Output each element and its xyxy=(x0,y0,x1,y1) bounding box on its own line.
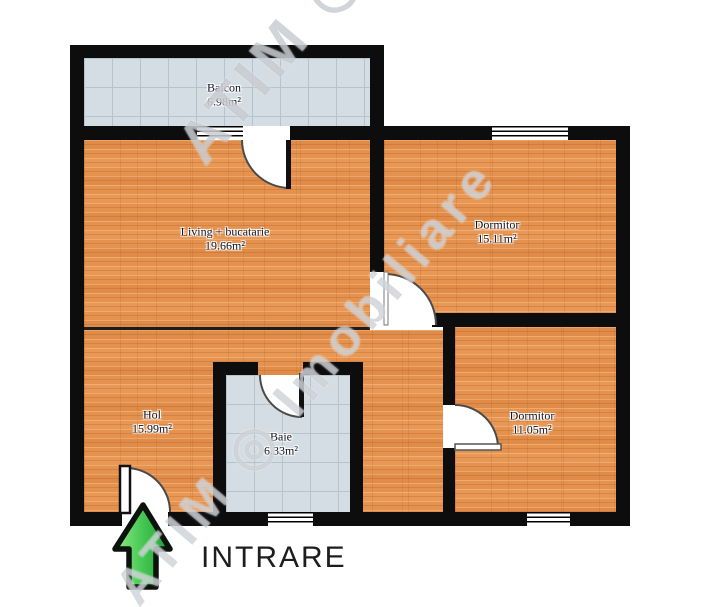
entrance-label: INTRARE xyxy=(201,541,347,575)
room-name: Living + bucatarie xyxy=(181,225,270,239)
room-area: 11.05m² xyxy=(510,423,555,437)
door-dormitor-1-leaf xyxy=(384,272,388,325)
room-area: 15.99m² xyxy=(132,422,172,436)
door-baie-leaf xyxy=(299,373,304,417)
entrance-arrow-icon xyxy=(115,505,170,587)
room-label-dormitor-1: Dormitor 15.11m² xyxy=(475,218,520,247)
doors-and-arrow-layer xyxy=(0,0,723,607)
room-label-living: Living + bucatarie 19.66m² xyxy=(181,225,270,254)
floor-plan: Balcon 6.98m² Living + bucatarie 19.66m²… xyxy=(0,0,723,607)
room-name: Baie xyxy=(264,430,298,444)
door-dormitor-2 xyxy=(455,405,501,450)
room-label-balcon: Balcon 6.98m² xyxy=(207,81,241,110)
room-label-hol: Hol 15.99m² xyxy=(132,408,172,437)
room-name: Balcon xyxy=(207,81,241,95)
door-baie xyxy=(260,373,304,417)
room-label-dormitor-2: Dormitor 11.05m² xyxy=(510,409,555,438)
door-entrance-leaf xyxy=(120,466,130,513)
room-area: 19.66m² xyxy=(181,239,270,253)
room-name: Dormitor xyxy=(510,409,555,423)
door-dormitor-1 xyxy=(384,272,436,325)
room-name: Hol xyxy=(132,408,172,422)
room-area: 15.11m² xyxy=(475,232,520,246)
room-name: Dormitor xyxy=(475,218,520,232)
room-area: 6.33m² xyxy=(264,444,298,458)
door-balcon-leaf xyxy=(286,140,291,189)
room-label-baie: Baie 6.33m² xyxy=(264,430,298,459)
room-area: 6.98m² xyxy=(207,95,241,109)
door-dormitor-2-leaf xyxy=(455,444,501,450)
door-balcon xyxy=(242,140,291,189)
